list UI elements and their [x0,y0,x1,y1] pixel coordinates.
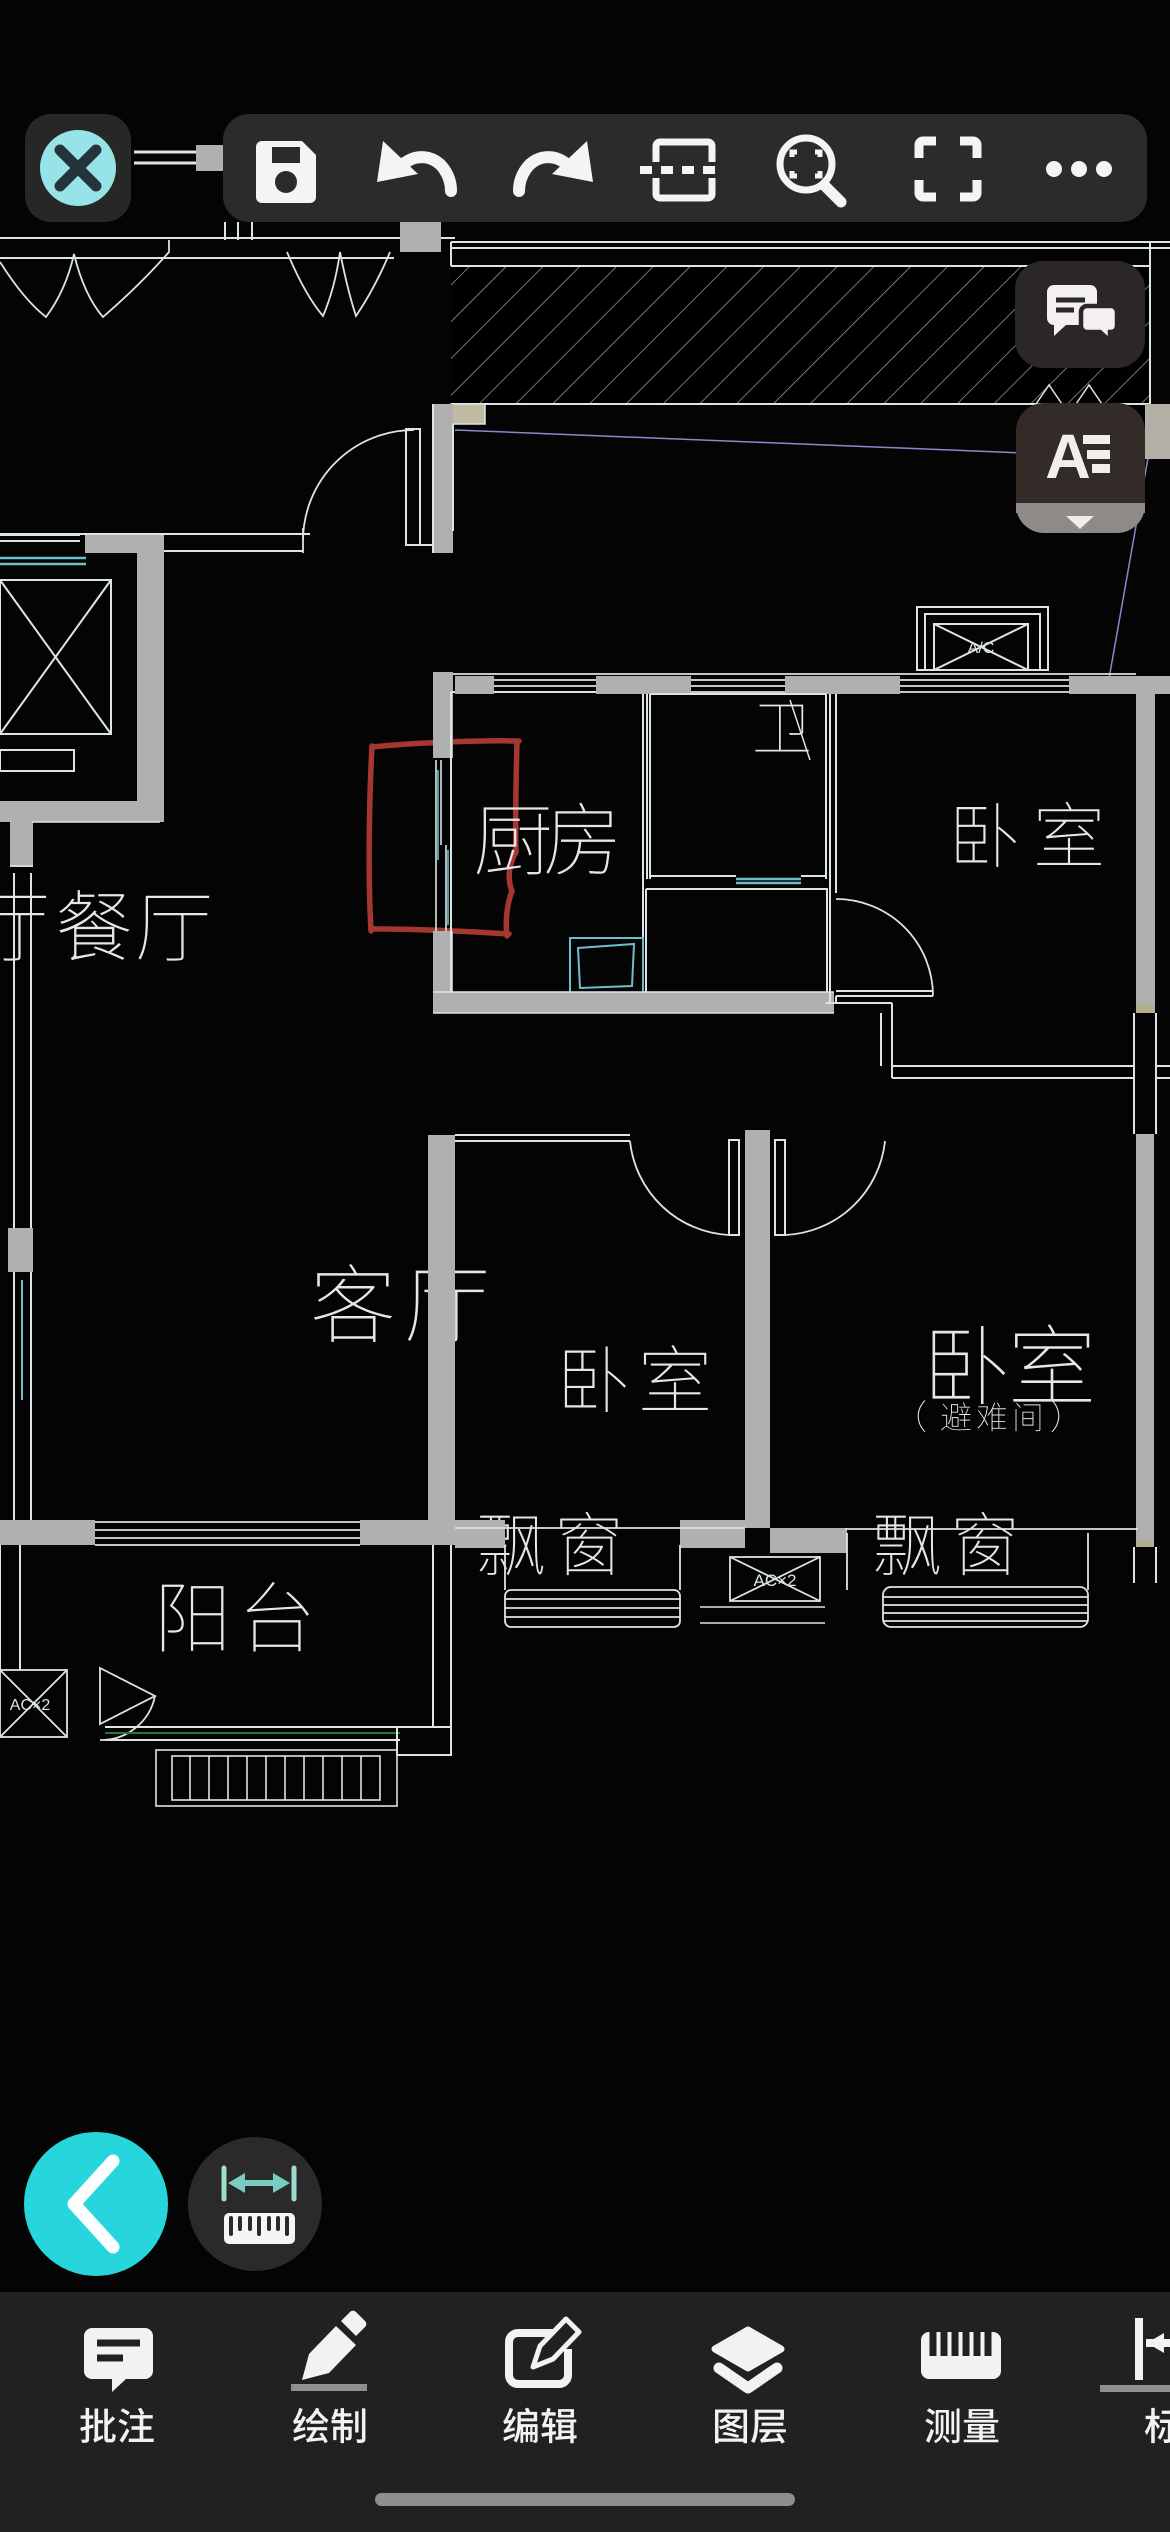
svg-text:AC×2: AC×2 [10,1697,51,1714]
svg-text:A/C: A/C [968,640,995,657]
svg-text:AC×2: AC×2 [754,1571,797,1590]
svg-text:A: A [1045,422,1091,492]
